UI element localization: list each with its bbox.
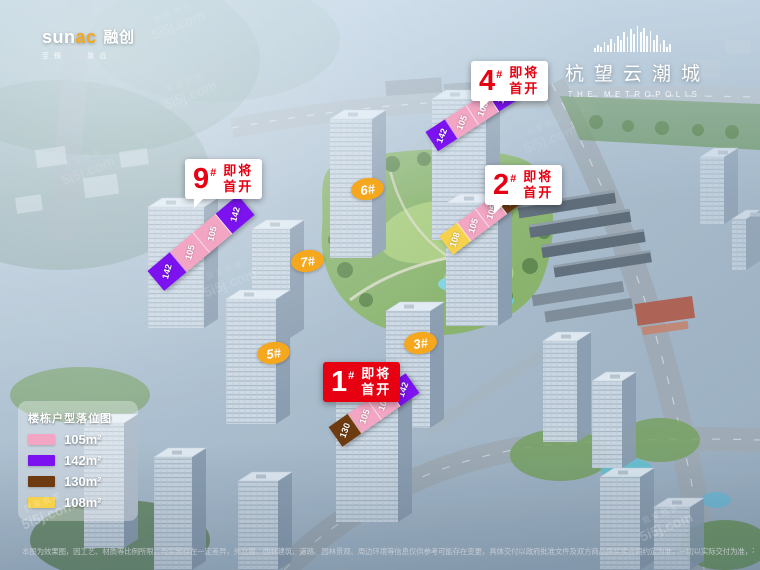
legend-label: 105m² <box>64 432 102 447</box>
hash-mark: # <box>510 173 516 185</box>
sunac-tagline: 至臻 · 致远 <box>42 51 135 61</box>
unit-area-label: 105 <box>183 244 197 261</box>
callout-line1: 即将 <box>361 366 391 382</box>
project-name: 杭望云潮城 <box>555 59 710 86</box>
callout-pointer <box>494 203 505 214</box>
sunac-chinese: 融创 <box>104 29 135 46</box>
developer-logo-sunac: sunac融创 至臻 · 致远 <box>42 28 135 61</box>
cloud-bars-logo-icon <box>555 24 710 52</box>
callout-line2: 首开 <box>509 81 539 97</box>
callout-building-2-coming-soon: 2# 即将首开 <box>485 165 562 205</box>
unit-area-label: 130 <box>338 422 353 440</box>
legend-label: 108m² <box>64 495 102 510</box>
callout-building-9-coming-soon: 9# 即将首开 <box>185 159 262 199</box>
legend-row: 105m² <box>28 432 128 447</box>
callout-line2: 首开 <box>523 185 553 201</box>
callout-pointer <box>480 99 491 110</box>
hash-mark: # <box>210 167 216 179</box>
callout-building-4-coming-soon: 4# 即将首开 <box>471 61 548 101</box>
building-number: 9 <box>193 165 209 194</box>
unit-type-legend: 楼栋户型落位图 105m² 142m² 130m² 108m² <box>18 401 138 521</box>
legend-title: 楼栋户型落位图 <box>28 410 128 426</box>
callout-building-1-coming-soon: 1# 即将首开 <box>323 362 400 402</box>
legend-swatch-130 <box>28 476 55 487</box>
unit-area-label: 105 <box>466 217 480 234</box>
building-number: 1 <box>331 368 347 397</box>
legend-swatch-105 <box>28 434 55 445</box>
callout-line1: 即将 <box>509 65 539 81</box>
callout-line2: 首开 <box>223 179 253 195</box>
unit-area-label: 105 <box>454 113 469 131</box>
legend-row: 142m² <box>28 453 128 468</box>
callout-line1: 即将 <box>223 163 253 179</box>
callout-line1: 即将 <box>523 169 553 185</box>
legend-label: 142m² <box>64 453 102 468</box>
building-number: 2 <box>493 171 509 200</box>
unit-area-label: 142 <box>228 206 242 223</box>
unit-area-label: 105 <box>357 408 372 426</box>
legend-swatch-108 <box>28 497 55 508</box>
unit-area-label: 142 <box>434 126 449 144</box>
legend-row: 130m² <box>28 474 128 489</box>
legend-label: 130m² <box>64 474 102 489</box>
legend-row: 108m² <box>28 495 128 510</box>
callout-pointer <box>194 197 205 208</box>
sunac-latin-white: sun <box>42 27 76 47</box>
project-logo: 杭望云潮城 THE METROPOLIS <box>555 24 710 99</box>
sunac-latin-orange: ac <box>76 27 97 47</box>
unit-area-label: 108 <box>448 230 462 247</box>
building-number: 4 <box>479 67 495 96</box>
callout-line2: 首开 <box>361 382 391 398</box>
hash-mark: # <box>496 69 502 81</box>
disclaimer-text: 本图为效果图，因工艺、材质等比例所限，与实景存在一定差异，外立面、园林建筑、道路… <box>22 546 754 557</box>
unit-area-label: 142 <box>160 263 174 280</box>
legend-swatch-142 <box>28 455 55 466</box>
hash-mark: # <box>348 370 354 382</box>
aerial-render-photo: 142 105 105 142 142 105 105 142 108 105 … <box>0 0 760 570</box>
unit-area-label: 105 <box>206 225 220 242</box>
project-name-en: THE METROPOLIS <box>555 90 710 99</box>
